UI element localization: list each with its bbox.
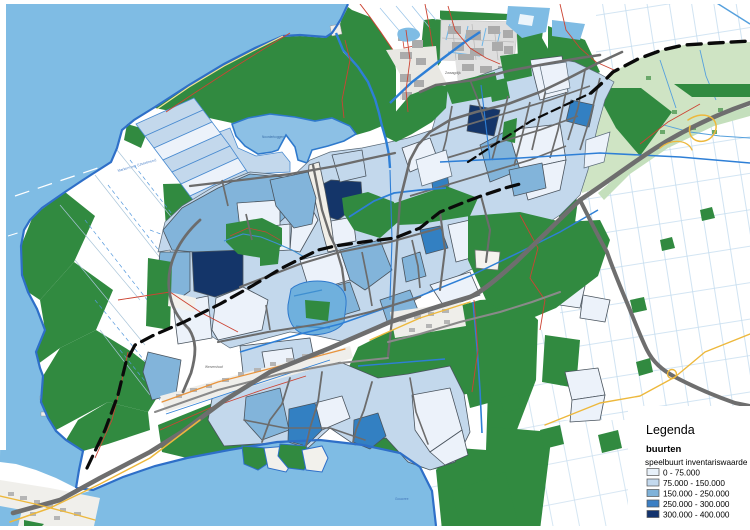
svg-text:300.000 - 400.000: 300.000 - 400.000	[663, 511, 730, 520]
svg-text:speelbuurt inventariswaarde: speelbuurt inventariswaarde	[645, 458, 748, 467]
svg-text:Noorderkoggen: Noorderkoggen	[262, 135, 284, 139]
svg-text:75.000 - 150.000: 75.000 - 150.000	[663, 479, 725, 488]
svg-text:Zwaagdijk: Zwaagdijk	[445, 71, 461, 75]
svg-text:Legenda: Legenda	[646, 423, 695, 437]
svg-text:250.000 - 300.000: 250.000 - 300.000	[663, 500, 730, 509]
svg-text:150.000 - 250.000: 150.000 - 250.000	[663, 490, 730, 499]
svg-text:Wervershoof: Wervershoof	[205, 365, 223, 369]
svg-text:0 - 75.000: 0 - 75.000	[663, 469, 700, 478]
svg-text:Gouwzee: Gouwzee	[395, 497, 409, 501]
svg-text:buurten: buurten	[646, 444, 682, 455]
